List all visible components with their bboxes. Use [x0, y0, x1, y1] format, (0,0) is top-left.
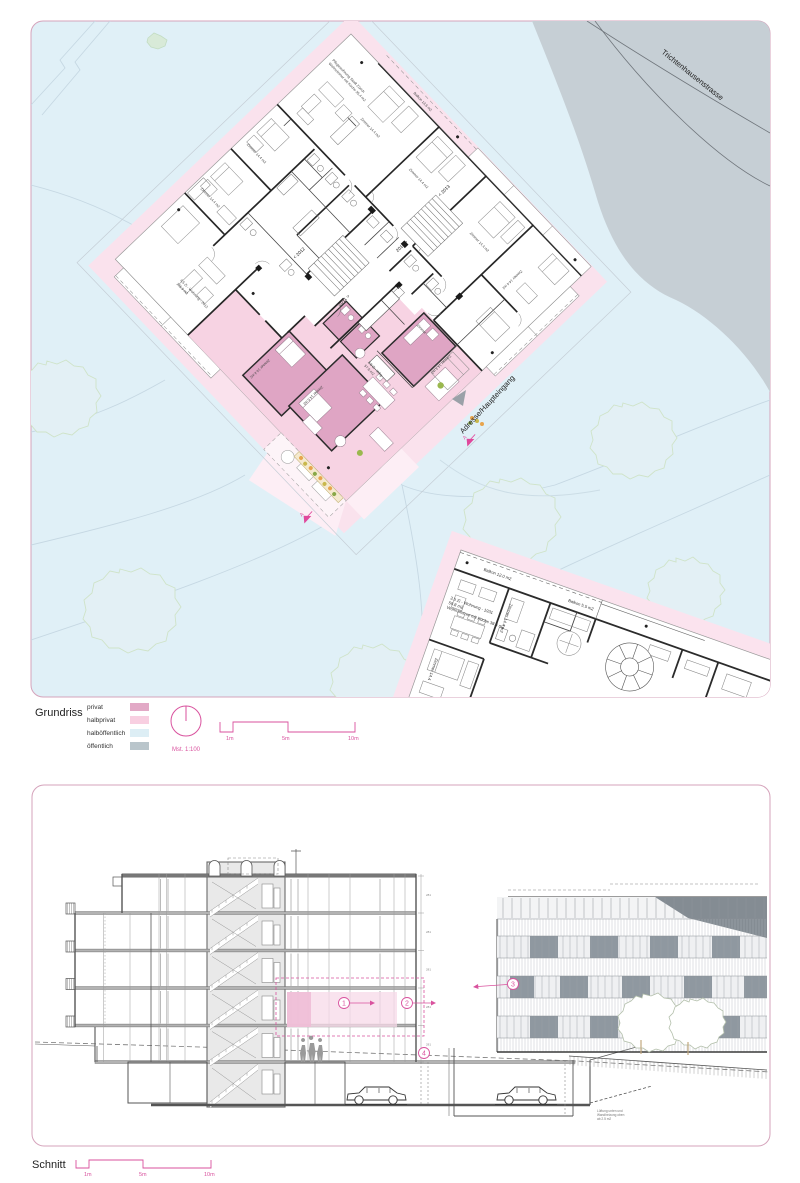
- svg-text:halböffentlich: halböffentlich: [87, 730, 126, 737]
- svg-text:öffentlich: öffentlich: [87, 743, 113, 750]
- svg-text:1m: 1m: [226, 736, 234, 742]
- svg-text:10m: 10m: [204, 1172, 215, 1178]
- svg-text:4: 4: [422, 1051, 426, 1058]
- svg-text:5m: 5m: [282, 736, 290, 742]
- svg-text:3: 3: [511, 982, 515, 989]
- svg-text:281: 281: [426, 1043, 431, 1047]
- svg-text:5m: 5m: [139, 1172, 147, 1178]
- svg-text:1m: 1m: [84, 1172, 92, 1178]
- svg-text:281: 281: [426, 930, 431, 934]
- svg-text:281: 281: [426, 968, 431, 972]
- svg-text:281: 281: [426, 893, 431, 897]
- svg-text:ab 2.5 m2: ab 2.5 m2: [597, 1117, 611, 1121]
- svg-text:281: 281: [426, 1005, 431, 1009]
- svg-text:10m: 10m: [348, 736, 359, 742]
- svg-text:halbprivat: halbprivat: [87, 717, 115, 724]
- svg-text:Grundriss: Grundriss: [35, 707, 83, 719]
- svg-text:Schnitt: Schnitt: [32, 1159, 66, 1171]
- svg-text:2: 2: [405, 1001, 409, 1008]
- svg-text:Mst. 1:100: Mst. 1:100: [172, 747, 201, 753]
- svg-text:privat: privat: [87, 704, 103, 711]
- svg-text:1: 1: [342, 1001, 346, 1008]
